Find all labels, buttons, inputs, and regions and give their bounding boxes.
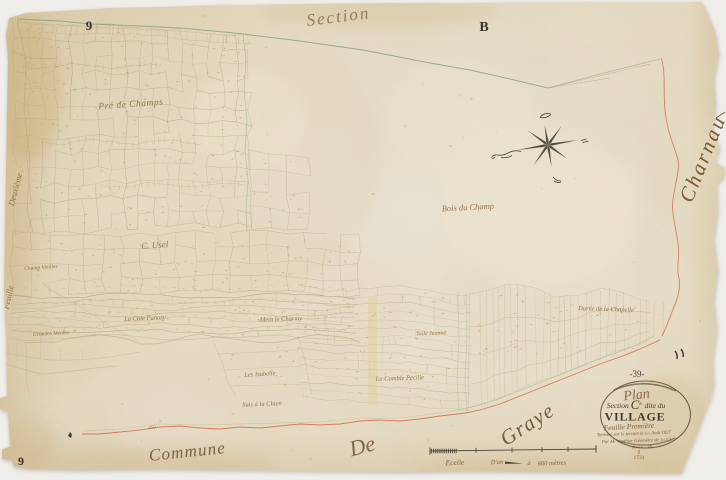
svg-text:9: 9 (86, 18, 93, 33)
svg-text:à: à (527, 460, 530, 467)
svg-text:1731: 1731 (634, 455, 645, 461)
svg-text:B: B (479, 20, 488, 35)
svg-text:Toile Jeanne: Toile Jeanne (416, 330, 447, 337)
svg-text:9: 9 (18, 454, 24, 468)
svg-text:Ecelle: Ecelle (444, 458, 465, 468)
svg-text:-39-: -39- (630, 369, 645, 379)
svg-text:D'un: D'un (490, 459, 504, 466)
svg-text:600 mètres: 600 mètres (538, 459, 567, 467)
svg-text:C. Usel: C. Usel (141, 239, 169, 251)
svg-text:du 1·C · lll: du 1·C · lll (632, 445, 653, 451)
svg-text:Suis à la Chien: Suis à la Chien (242, 400, 282, 408)
svg-text:450: 450 (148, 426, 156, 431)
